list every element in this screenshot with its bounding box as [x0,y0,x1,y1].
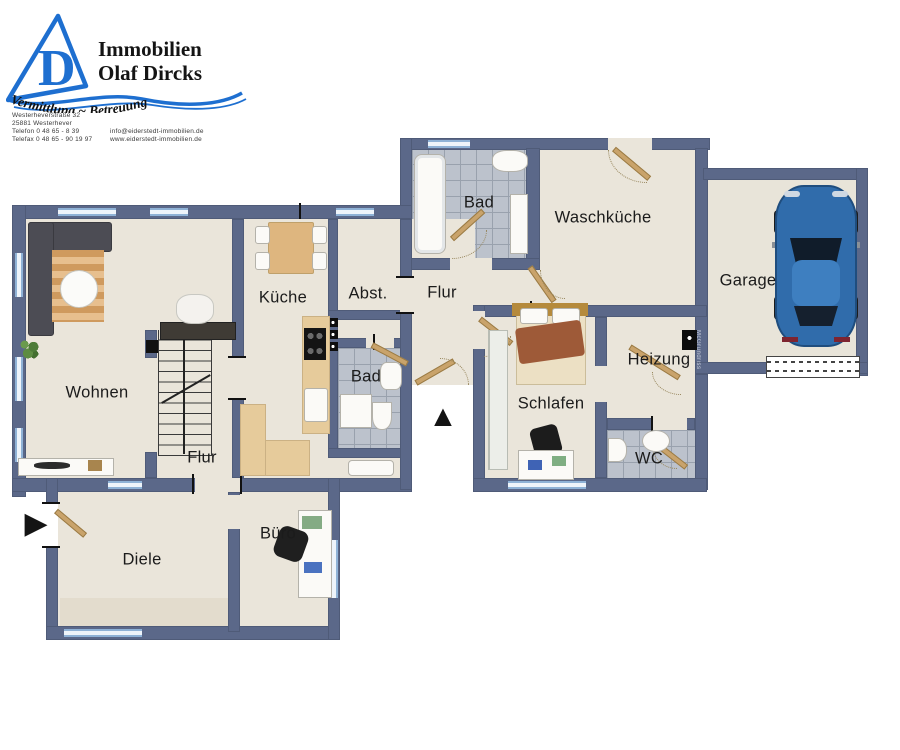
room-label-kueche: Küche [259,289,307,308]
watermark: McGrundriss [695,330,701,382]
chair [312,252,327,270]
sofa [28,222,54,336]
window [336,208,374,216]
staircase [158,330,212,456]
wall-flur-left [400,219,412,490]
desk-item [304,562,322,573]
car-rear-window [794,306,838,326]
car-taillight [782,337,798,342]
car-headlight [832,191,848,197]
logo-monogram: D [38,40,76,97]
wall-garage-top [703,168,868,180]
room-label-bad-klein: Bad [351,368,381,387]
address-line: Telefon 0 48 65 - 8 39 [12,128,92,136]
contact-block: info@eiderstedt-immobilien.de www.eiders… [110,128,204,144]
window [15,357,23,401]
room-label-buero: Büro [260,525,296,544]
radiator [510,194,528,254]
window [15,253,23,297]
company-logo: D Immobilien Olaf Dircks Vermittlung ~ B… [6,8,256,113]
room-label-schlafen: Schlafen [518,395,585,414]
website-line: www.eiderstedt-immobilien.de [110,136,204,144]
desk-item [302,516,322,529]
door-opening-flur-diele [195,478,240,492]
door-tick [42,546,60,548]
wardrobe [488,330,508,470]
door-tick [299,203,301,219]
room-label-wc: WC [635,450,663,469]
wall-unit [146,340,158,353]
shower [340,394,372,428]
kitchen-counter [240,404,266,476]
pillow [520,308,548,324]
desk-item [552,456,566,466]
toilet [608,438,627,462]
room-label-wohnen: Wohnen [66,384,129,403]
diele-mat [60,598,228,626]
car-roof [792,260,840,306]
tv-icon [34,462,70,469]
room-label-diele: Diele [122,551,161,570]
room-label-waschkueche: Waschküche [555,209,652,228]
bathtub [414,154,446,254]
address-line: 25881 Westerhever [12,120,92,128]
address-line: Telefax 0 48 65 - 90 19 97 [12,136,92,144]
wall-bad-waschkueche [526,148,540,260]
sideboard-item [88,460,102,471]
door-tick [228,356,246,358]
door-tick [396,312,414,314]
door-opening-kueche [232,358,244,398]
wall-waschkueche-bottom [473,305,707,317]
wall-right-lower [695,374,708,490]
door-tick [240,474,242,494]
door-tick [396,276,414,278]
logo-company-line2: Olaf Dircks [98,61,202,85]
room-label-flur-eg: Flur [187,449,217,468]
window [428,140,470,148]
door-opening-buero [228,495,240,529]
door-opening-abst [400,278,412,312]
floorplan-page: D Immobilien Olaf Dircks Vermittlung ~ B… [0,0,900,750]
address-line: Westerheverstraße 32 [12,112,92,120]
chair [312,226,327,244]
room-label-bad-gross: Bad [464,194,494,213]
window [108,481,142,489]
stove [304,328,326,360]
door-tick [42,502,60,504]
window [58,208,116,216]
sink [380,362,402,390]
door-opening-wc [653,418,687,430]
stair-center-line [183,334,185,454]
chair [255,252,270,270]
door-opening-heizung [595,366,607,402]
garage-door [766,356,860,378]
landing-desk [160,322,236,340]
toilet [372,402,392,430]
room-label-abst: Abst. [348,285,387,304]
window [150,208,188,216]
entrance-arrow-icon: ▶ [24,509,47,539]
car-taillight [834,337,850,342]
door-opening-bad-gross [450,258,492,270]
room-label-heizung: Heizung [628,351,691,370]
room-label-garage: Garage [720,272,777,291]
coffee-table [60,270,98,308]
doormat [348,460,394,476]
window [508,481,586,489]
email-line: info@eiderstedt-immobilien.de [110,128,204,136]
wall-stair-stub-bottom [145,452,157,478]
window [64,629,142,637]
room-label-flur-mitte: Flur [427,284,457,303]
plant-icon [18,338,40,360]
car-headlight [784,191,800,197]
door-tick [228,398,246,400]
window [15,428,23,462]
landing-chair [176,294,214,324]
sink [492,150,528,172]
dining-table [268,222,314,274]
chair [255,226,270,244]
door-tick [192,474,194,494]
kitchen-sink [304,388,328,422]
car [772,184,860,348]
logo-company-line1: Immobilien [98,37,202,61]
desk-item [528,460,542,470]
address-block: Westerheverstraße 32 25881 Westerhever T… [12,112,92,144]
north-arrow-icon: ▲ [428,402,458,432]
